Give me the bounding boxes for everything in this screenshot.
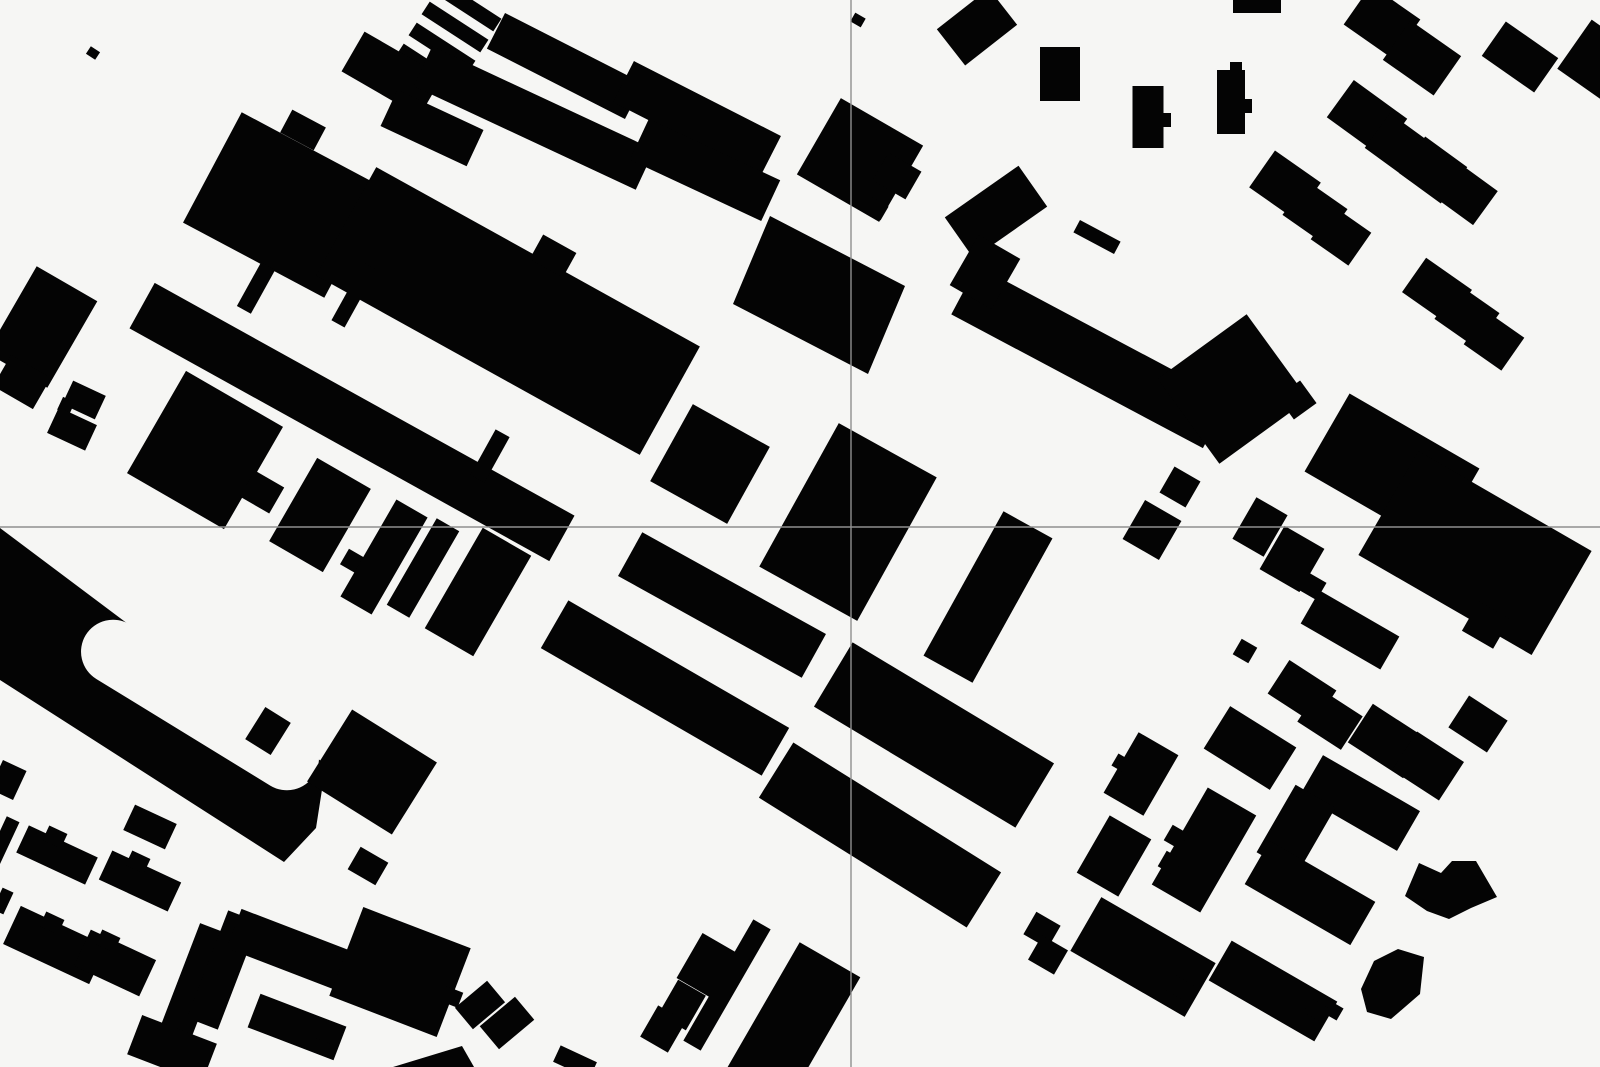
- building-footprint: [1242, 99, 1252, 113]
- building-footprint-map: [0, 0, 1600, 1067]
- building-footprint: [1161, 113, 1171, 127]
- building-footprint: [1217, 70, 1245, 134]
- map-viewport[interactable]: [0, 0, 1600, 1067]
- building-footprint: [1040, 47, 1080, 101]
- building-footprint: [1133, 86, 1164, 148]
- building-footprint: [1233, 0, 1281, 13]
- building-footprint: [1230, 62, 1242, 72]
